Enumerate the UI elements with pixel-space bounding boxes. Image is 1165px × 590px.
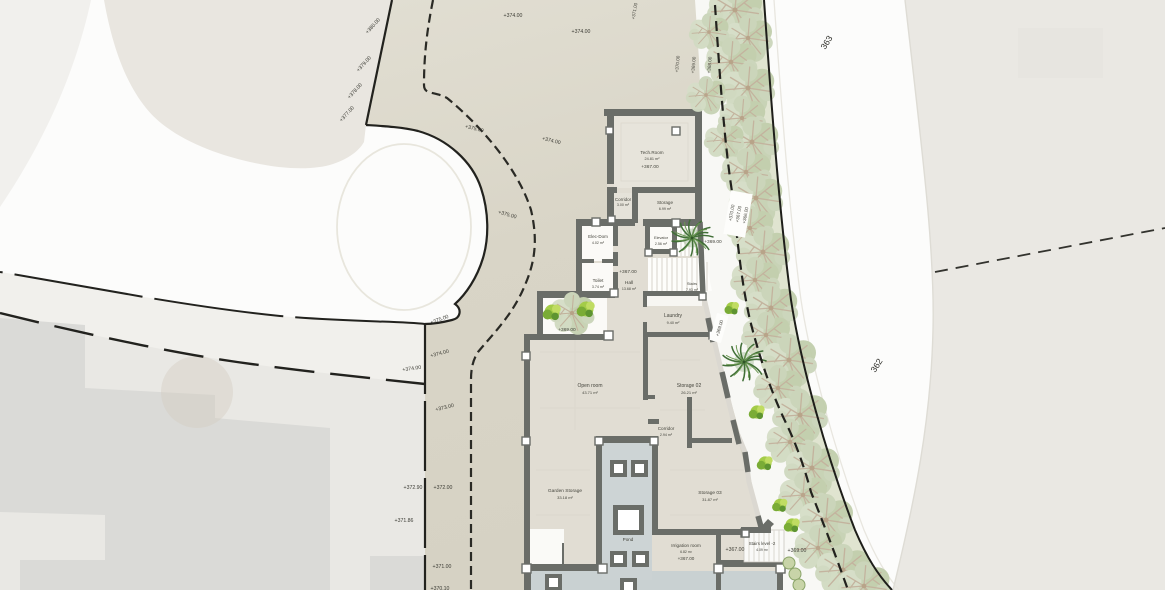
svg-text:+367.00: +367.00 <box>641 164 659 170</box>
svg-text:9.40 m²: 9.40 m² <box>667 321 681 325</box>
svg-text:Hall: Hall <box>625 280 633 286</box>
svg-text:Toilet: Toilet <box>593 278 604 283</box>
svg-text:Corridor: Corridor <box>658 426 675 431</box>
svg-text:31.87 m²: 31.87 m² <box>702 497 718 502</box>
svg-text:Garden Storage: Garden Storage <box>548 488 582 494</box>
svg-text:Elec-Dom: Elec-Dom <box>588 234 608 239</box>
svg-text:+370.10: +370.10 <box>431 586 450 590</box>
svg-text:26.21 m²: 26.21 m² <box>681 390 697 395</box>
svg-text:+369.00: +369.00 <box>704 239 722 245</box>
svg-text:Stairs: Stairs <box>687 281 697 286</box>
svg-text:Storage: Storage <box>657 200 674 205</box>
svg-text:+371.86: +371.86 <box>395 518 414 524</box>
svg-text:Open room: Open room <box>577 383 602 389</box>
svg-text:4.09 m²: 4.09 m² <box>756 548 769 552</box>
svg-text:2.94 m²: 2.94 m² <box>660 433 673 437</box>
svg-text:Tech.Room: Tech.Room <box>640 150 663 155</box>
svg-text:+374.00: +374.00 <box>504 13 523 19</box>
svg-text:Laundry: Laundry <box>664 313 683 319</box>
svg-text:3.00 m²: 3.00 m² <box>617 203 630 207</box>
svg-text:Irrigation room: Irrigation room <box>671 543 701 548</box>
svg-text:+374.00: +374.00 <box>572 29 591 35</box>
svg-text:Storage 03: Storage 03 <box>698 490 722 496</box>
svg-text:3.74 m²: 3.74 m² <box>592 285 605 289</box>
svg-text:+367.00: +367.00 <box>678 556 695 561</box>
svg-text:+369.00: +369.00 <box>788 548 807 554</box>
svg-text:+371.00: +371.00 <box>433 564 452 570</box>
svg-text:+367.00: +367.00 <box>726 547 745 553</box>
svg-text:+372.00: +372.00 <box>434 485 453 491</box>
svg-text:43.71 m²: 43.71 m² <box>582 390 598 395</box>
svg-text:7.93 m²: 7.93 m² <box>686 288 699 292</box>
svg-text:2.56 m²: 2.56 m² <box>655 242 668 246</box>
svg-text:33.18 m²: 33.18 m² <box>557 495 573 500</box>
svg-text:4.02 m²: 4.02 m² <box>592 241 605 245</box>
svg-text:Storage 02: Storage 02 <box>677 383 702 389</box>
svg-text:24.81 m²: 24.81 m² <box>645 157 661 161</box>
svg-text:Elevator: Elevator <box>654 236 669 240</box>
svg-text:+372.90: +372.90 <box>404 485 423 491</box>
svg-text:+367.00: +367.00 <box>619 269 637 275</box>
svg-text:Stairs level -2: Stairs level -2 <box>749 541 776 546</box>
svg-text:Pond: Pond <box>623 537 634 542</box>
svg-text:13.68 m²: 13.68 m² <box>622 287 637 291</box>
svg-text:Corridor: Corridor <box>615 197 632 202</box>
svg-text:6.82 m²: 6.82 m² <box>680 550 693 554</box>
svg-text:+369.00: +369.00 <box>558 327 576 333</box>
svg-text:6.99 m²: 6.99 m² <box>659 207 672 211</box>
